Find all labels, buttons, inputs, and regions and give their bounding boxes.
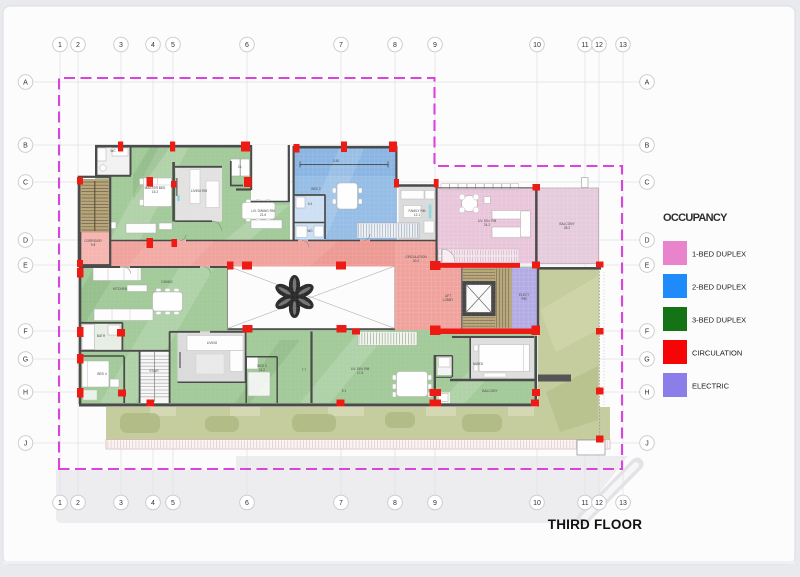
svg-text:7: 7 xyxy=(339,42,343,49)
svg-text:11: 11 xyxy=(581,500,588,507)
svg-text:CIRCULATION: CIRCULATION xyxy=(692,349,742,358)
svg-text:A: A xyxy=(645,79,650,86)
svg-text:OCCUPANCY: OCCUPANCY xyxy=(663,212,728,224)
svg-text:ELECTRIC: ELECTRIC xyxy=(692,382,730,391)
svg-text:7.7: 7.7 xyxy=(302,368,307,372)
svg-text:6: 6 xyxy=(245,500,249,507)
svg-text:F: F xyxy=(23,328,27,335)
svg-text:4: 4 xyxy=(151,500,155,507)
svg-text:24.2: 24.2 xyxy=(484,223,490,227)
svg-text:11: 11 xyxy=(581,42,588,49)
svg-text:12.1: 12.1 xyxy=(414,213,420,217)
svg-text:13: 13 xyxy=(619,500,627,507)
svg-text:5: 5 xyxy=(171,500,175,507)
svg-text:9: 9 xyxy=(433,42,437,49)
svg-text:B: B xyxy=(645,142,650,149)
svg-text:G: G xyxy=(644,356,649,363)
svg-text:11.2: 11.2 xyxy=(259,368,265,372)
svg-text:28.2: 28.2 xyxy=(564,226,570,230)
svg-text:LIVING RM: LIVING RM xyxy=(191,189,208,193)
svg-text:LOBBY: LOBBY xyxy=(443,298,455,302)
svg-text:E: E xyxy=(645,262,650,269)
svg-text:3: 3 xyxy=(119,42,123,49)
svg-text:12: 12 xyxy=(595,500,603,507)
svg-text:G: G xyxy=(23,356,28,363)
svg-text:WC: WC xyxy=(307,229,313,233)
svg-text:M.BED: M.BED xyxy=(473,362,484,366)
svg-text:RM: RM xyxy=(522,297,527,301)
svg-text:10: 10 xyxy=(533,500,541,507)
svg-text:9.4: 9.4 xyxy=(308,202,313,206)
svg-text:3-BED DUPLEX: 3-BED DUPLEX xyxy=(692,316,746,325)
svg-text:STAIR: STAIR xyxy=(149,369,159,373)
svg-text:D: D xyxy=(23,237,28,244)
svg-text:30.2: 30.2 xyxy=(413,259,419,263)
svg-text:9: 9 xyxy=(433,500,437,507)
svg-text:BED 2: BED 2 xyxy=(311,187,320,191)
svg-text:E: E xyxy=(23,262,28,269)
svg-text:CL: CL xyxy=(238,165,242,169)
svg-text:12: 12 xyxy=(595,42,603,49)
svg-text:9.8: 9.8 xyxy=(91,243,96,247)
svg-text:6: 6 xyxy=(245,42,249,49)
svg-text:1: 1 xyxy=(58,42,62,49)
svg-text:H: H xyxy=(644,389,649,396)
svg-text:A: A xyxy=(23,79,28,86)
svg-text:10: 10 xyxy=(533,42,541,49)
svg-text:BALCONY: BALCONY xyxy=(482,389,498,393)
svg-text:J: J xyxy=(645,440,649,447)
svg-text:8: 8 xyxy=(393,500,397,507)
svg-text:DINING: DINING xyxy=(161,280,173,284)
svg-text:3.30: 3.30 xyxy=(333,159,339,163)
svg-text:1-BED DUPLEX: 1-BED DUPLEX xyxy=(692,250,746,259)
svg-text:3: 3 xyxy=(119,500,123,507)
svg-text:H: H xyxy=(23,389,28,396)
svg-text:5: 5 xyxy=(171,42,175,49)
svg-text:J: J xyxy=(24,440,28,447)
svg-text:17.8: 17.8 xyxy=(357,371,363,375)
svg-text:BATH: BATH xyxy=(97,334,106,338)
svg-text:13: 13 xyxy=(619,42,627,49)
svg-text:B: B xyxy=(23,142,28,149)
svg-text:LIVING: LIVING xyxy=(207,341,218,345)
svg-text:C: C xyxy=(644,179,649,186)
svg-text:BED 4: BED 4 xyxy=(97,372,106,376)
svg-text:D: D xyxy=(644,237,649,244)
svg-text:8: 8 xyxy=(393,42,397,49)
svg-text:4: 4 xyxy=(151,42,155,49)
svg-text:C: C xyxy=(23,179,28,186)
svg-text:9.1: 9.1 xyxy=(342,389,347,393)
svg-text:21.6: 21.6 xyxy=(260,213,266,217)
svg-text:F: F xyxy=(645,328,649,335)
svg-text:7: 7 xyxy=(339,500,343,507)
svg-text:2: 2 xyxy=(76,500,80,507)
svg-text:KITCHEN: KITCHEN xyxy=(113,287,128,291)
svg-text:2-BED DUPLEX: 2-BED DUPLEX xyxy=(692,283,746,292)
svg-text:1: 1 xyxy=(58,500,62,507)
svg-text:WC: WC xyxy=(110,149,116,153)
svg-text:THIRD FLOOR: THIRD FLOOR xyxy=(548,517,642,532)
svg-text:15.2: 15.2 xyxy=(152,190,158,194)
svg-text:2: 2 xyxy=(76,42,80,49)
